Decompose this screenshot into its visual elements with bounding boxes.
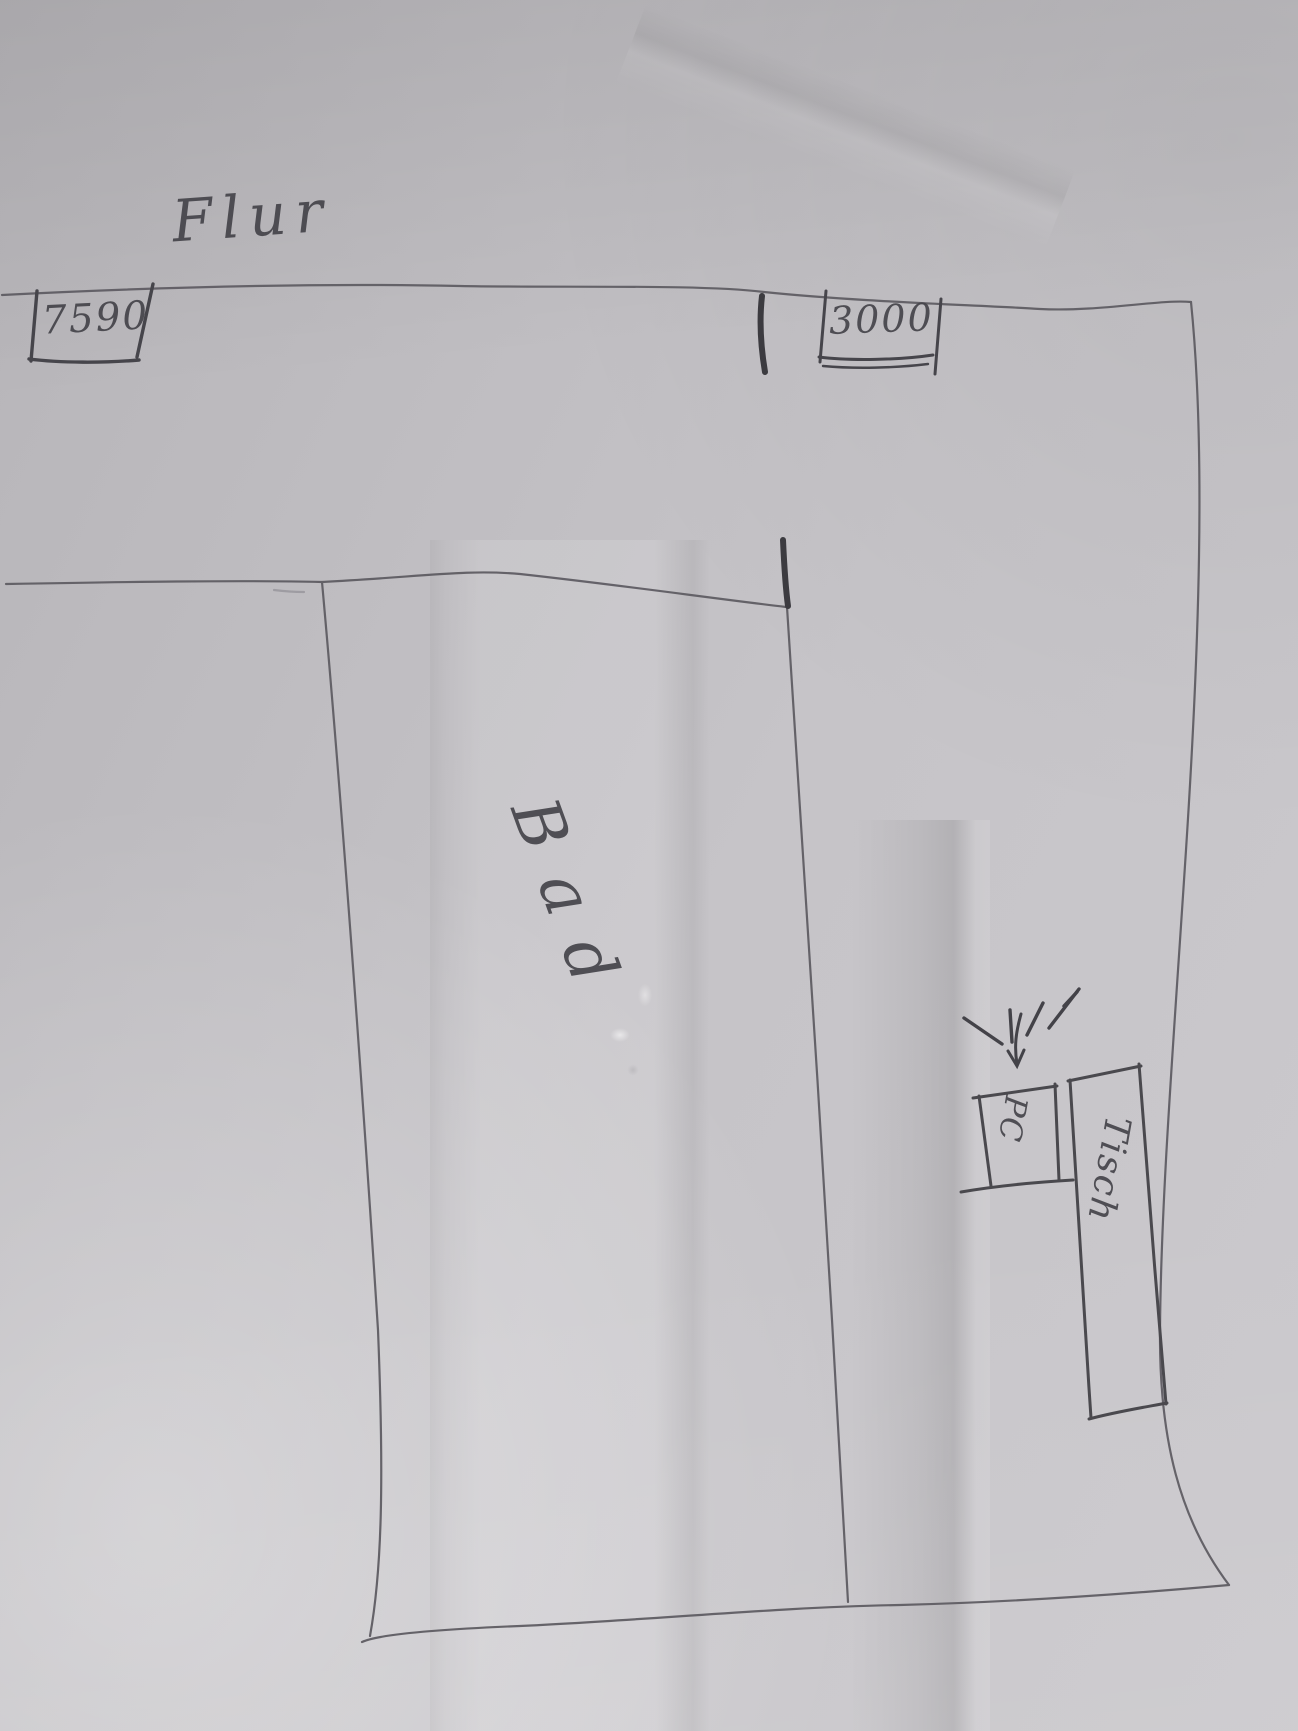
dim-3000-underline-2	[823, 364, 928, 368]
wall-top-line	[2, 285, 1191, 309]
wall-bottom-line	[362, 1585, 1229, 1642]
wall-bad-right-line	[787, 607, 848, 1602]
door-jamb-middle-tick	[783, 540, 788, 606]
pencil-smudge	[274, 590, 304, 592]
wall-right-line	[1160, 302, 1229, 1585]
wall-flur-bad-divider-line	[6, 572, 786, 607]
photographed-floorplan-sketch: Flur 7590 3000 Bad PC Tisch	[0, 0, 1298, 1731]
wall-bad-left-line	[322, 582, 381, 1636]
dim-3000-left-tick	[820, 291, 826, 362]
dim-3000-underline-1	[819, 355, 933, 359]
door-jamb-top-tick	[761, 296, 765, 372]
dim-3000-right-tick	[935, 299, 941, 374]
dimension-3000-value: 3000	[828, 295, 934, 343]
dimension-7590-value: 7590	[41, 293, 150, 344]
dim-7590-underline	[29, 359, 139, 362]
hallway-label: Flur	[170, 177, 334, 256]
floorplan-line-art	[0, 0, 1298, 1731]
dim-7590-left-tick	[31, 291, 37, 361]
